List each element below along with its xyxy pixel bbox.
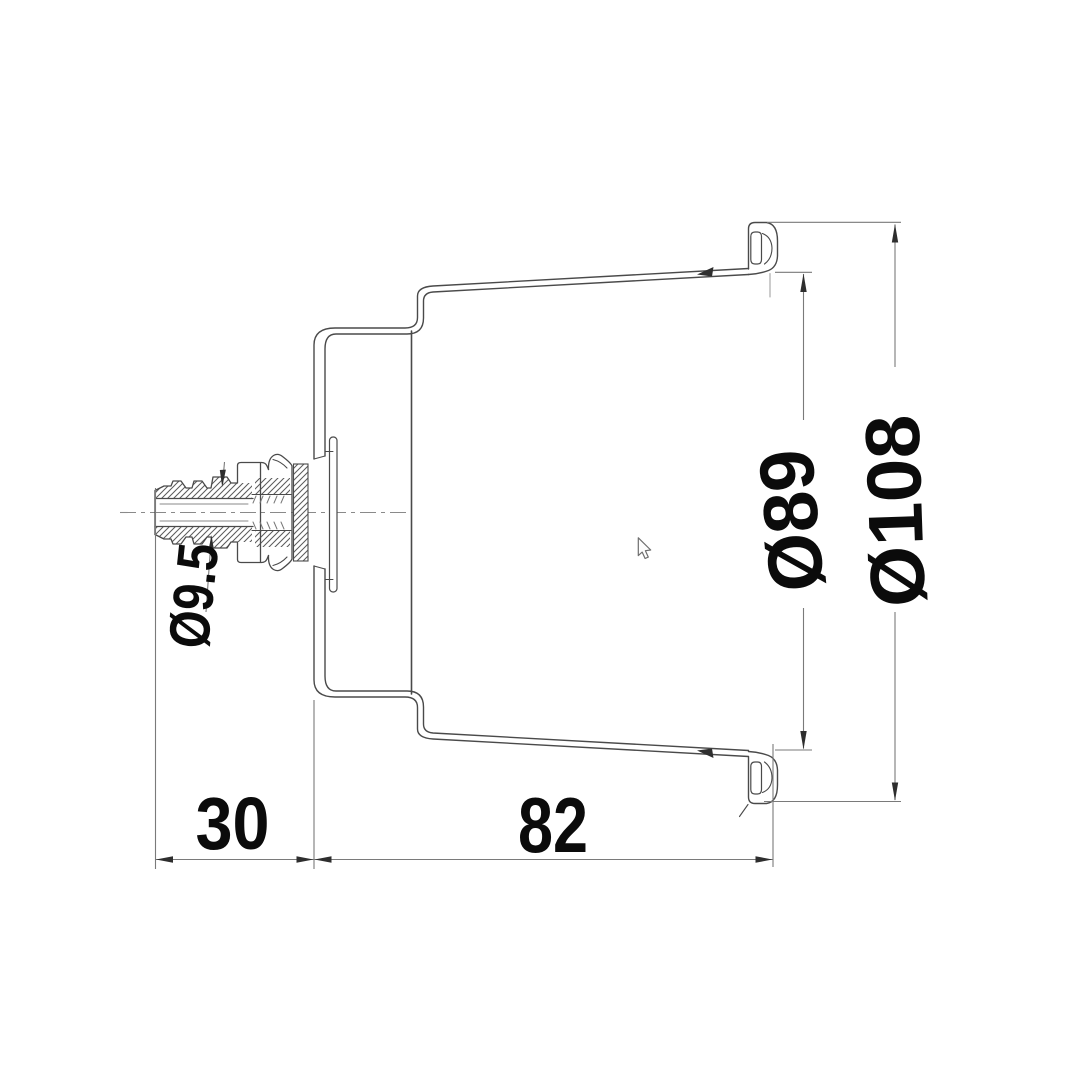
cursor-icon	[638, 538, 650, 559]
gasket-hatch	[294, 464, 309, 561]
inner-washer-plate	[330, 437, 338, 592]
dim-label-inner-diameter: Ø89	[743, 446, 841, 595]
dim-label-barb-diameter: Ø9.5	[157, 540, 232, 651]
dim-label-outer-diameter: Ø108	[849, 414, 942, 609]
lower-wall-inner	[325, 569, 749, 751]
dim-label-barb-length: 30	[196, 782, 270, 865]
cup-body-profile	[314, 223, 778, 817]
lower-wall-outer	[314, 566, 749, 757]
upper-wall-outer	[314, 269, 749, 460]
dim-label-body-depth: 82	[518, 781, 588, 869]
upper-wall-inner	[325, 275, 749, 457]
technical-drawing: Ø9.5 30 82 Ø89 Ø108	[0, 0, 1080, 1080]
top-rim-lip	[749, 223, 778, 275]
drawing-canvas: Ø9.5 30 82 Ø89 Ø108	[0, 0, 1080, 1080]
